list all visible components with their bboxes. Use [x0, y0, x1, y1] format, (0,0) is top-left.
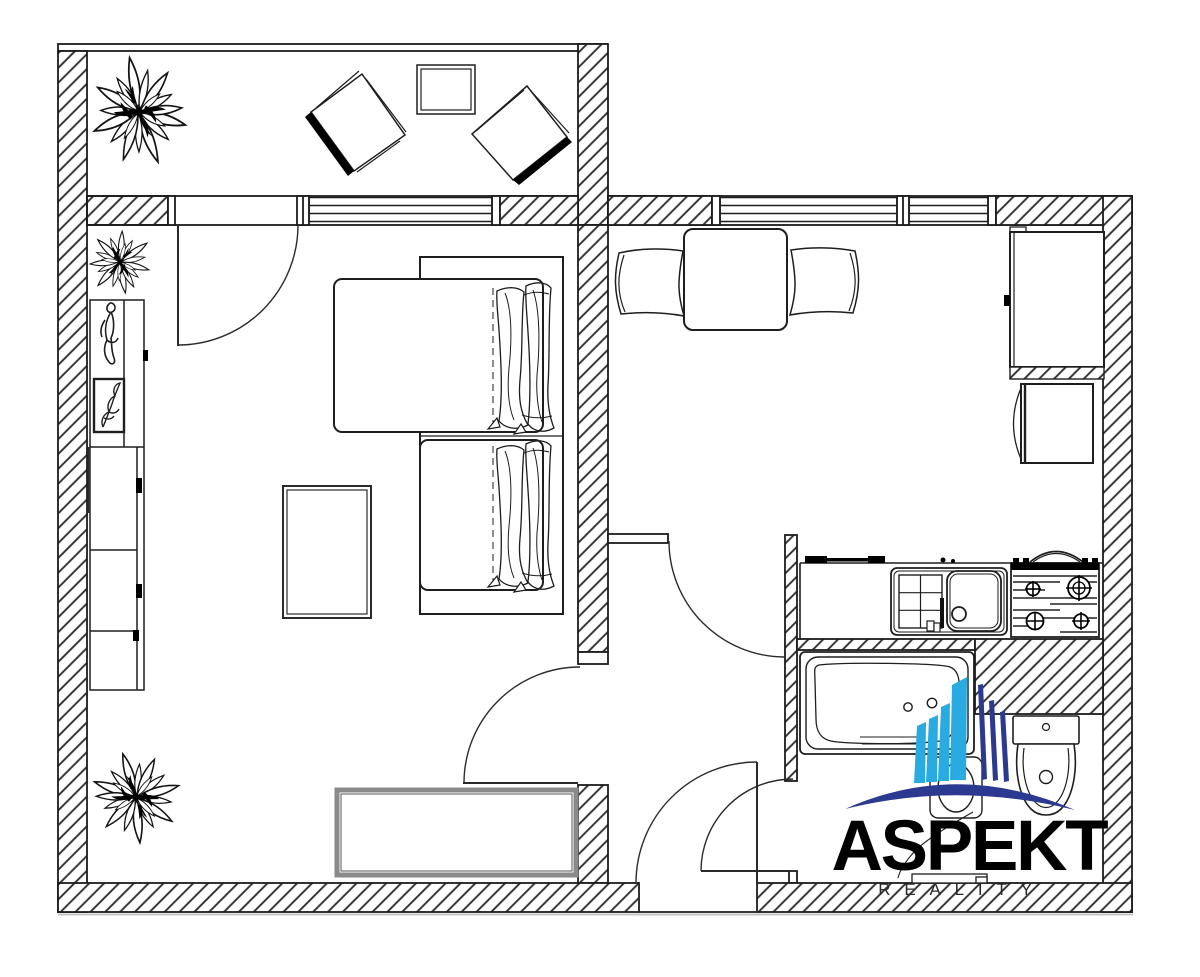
svg-text:REALITY: REALITY	[878, 880, 1045, 899]
svg-text:ASPEKT: ASPEKT	[832, 807, 1109, 886]
